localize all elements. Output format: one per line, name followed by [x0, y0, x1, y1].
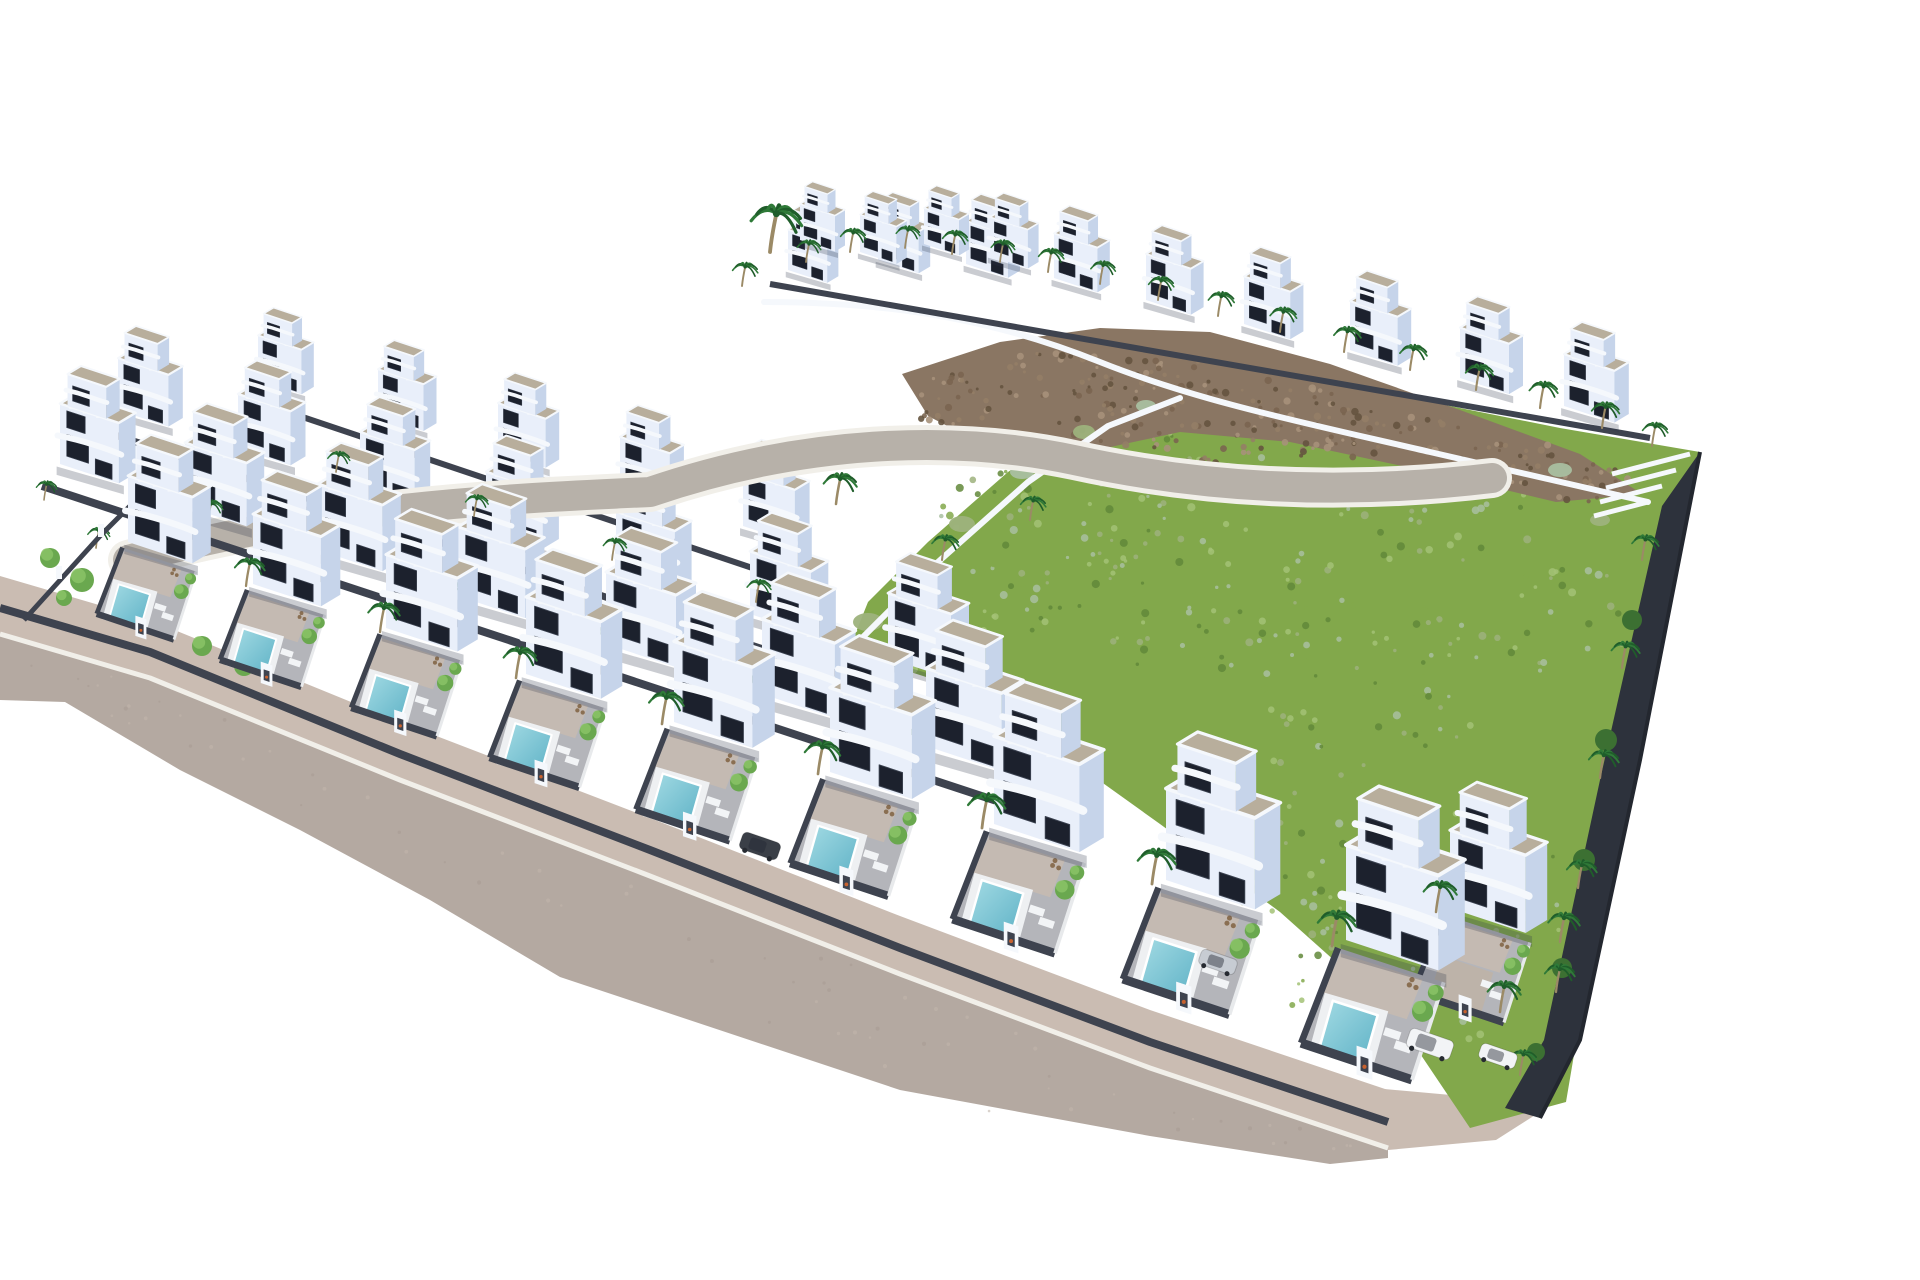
grass-tuft — [1447, 695, 1450, 698]
grass-tuft — [1519, 593, 1524, 598]
rock-speckle — [1334, 442, 1337, 445]
grass-tuft — [1177, 536, 1184, 543]
tree-highlight — [41, 548, 53, 560]
grass-tuft — [1187, 606, 1191, 610]
road-texture-dot — [189, 744, 192, 747]
rock-speckle — [1122, 441, 1129, 448]
grass-tuft — [1474, 655, 1478, 659]
rock-speckle — [1235, 433, 1240, 438]
rock-speckle — [945, 404, 952, 411]
grass-tuft — [977, 568, 985, 576]
rock-speckle — [1110, 412, 1114, 416]
tree — [56, 590, 72, 606]
road-texture-dot — [883, 1064, 887, 1068]
palm-frond — [1529, 385, 1543, 391]
grass-tuft — [1467, 722, 1474, 729]
grass-tuft — [1409, 517, 1414, 522]
grass-tuft — [1484, 501, 1490, 507]
tree — [743, 760, 756, 773]
road-texture-dot — [1033, 1046, 1037, 1050]
palm-crown — [743, 265, 747, 269]
grass-tuft — [1307, 871, 1315, 879]
grass-tuft — [1306, 654, 1311, 659]
villa-side-face — [912, 701, 935, 799]
tree-highlight — [175, 585, 184, 594]
grass-tuft — [1339, 512, 1343, 516]
rock-speckle — [1152, 358, 1159, 365]
palm-crown — [984, 797, 989, 802]
grass-tuft — [1304, 608, 1311, 615]
bed-tree — [1622, 610, 1642, 630]
road-texture-dot — [209, 745, 213, 749]
rock-speckle — [1202, 455, 1207, 460]
palm-trunk — [818, 747, 822, 774]
rock-speckle — [1282, 439, 1289, 446]
shrub — [1548, 463, 1572, 477]
grass-tuft — [1412, 692, 1416, 696]
rock-speckle — [1526, 463, 1529, 466]
grass-tuft — [1615, 610, 1622, 617]
grass-tuft — [1319, 745, 1323, 749]
patio-furniture — [581, 710, 585, 714]
rock-speckle — [1288, 388, 1292, 392]
rock-speckle — [1251, 427, 1257, 433]
grass-tuft — [970, 569, 975, 574]
palm-crown — [1219, 295, 1223, 299]
rock-speckle — [1180, 423, 1184, 427]
grass-tuft — [1147, 529, 1151, 533]
grass-tuft — [1092, 580, 1100, 588]
flower-pot — [1009, 939, 1013, 943]
grass-tuft — [1549, 576, 1553, 580]
grass-tuft — [1046, 581, 1049, 584]
grass-tuft — [1258, 608, 1264, 614]
grass-tuft — [1259, 617, 1266, 624]
grass-tuft — [1393, 649, 1396, 652]
rock-speckle — [1088, 385, 1091, 388]
grass-tuft — [1007, 513, 1014, 520]
rock-speckle — [1138, 422, 1143, 427]
flower-pot — [265, 676, 268, 679]
grass-tuft — [1314, 674, 1317, 677]
rock-speckle — [1399, 431, 1402, 434]
rock-speckle — [1222, 389, 1230, 397]
rock-speckle — [1329, 392, 1333, 396]
grass-tuft — [1287, 583, 1295, 591]
grass-tuft — [1223, 521, 1229, 527]
rock-speckle — [1350, 420, 1356, 426]
grass-tuft — [1518, 505, 1523, 510]
grass-tuft — [956, 484, 964, 492]
grass-tuft — [1235, 535, 1242, 542]
rock-speckle — [1245, 422, 1251, 428]
grass-tuft — [1257, 638, 1262, 643]
rock-speckle — [1152, 445, 1156, 449]
tree-highlight — [450, 663, 458, 671]
rock-speckle — [1599, 470, 1604, 475]
palm-crown — [1334, 915, 1339, 920]
palm-frond — [733, 265, 746, 270]
grass-tuft — [1090, 532, 1093, 535]
grass-tuft — [1110, 570, 1115, 575]
grass-tuft — [1343, 812, 1350, 819]
grass-tuft — [1219, 655, 1224, 660]
rock-speckle — [1370, 449, 1377, 456]
grass-tuft — [1283, 566, 1290, 573]
rock-speckle — [1142, 358, 1148, 364]
rock-speckle — [1162, 373, 1166, 377]
grass-tuft — [1027, 506, 1031, 510]
grass-tuft — [1380, 552, 1387, 559]
grass-tuft — [1336, 637, 1341, 642]
rock-speckle — [1241, 389, 1244, 392]
palm-crown — [1346, 329, 1350, 333]
rock-speckle — [1314, 413, 1321, 420]
rock-speckle — [1535, 463, 1541, 469]
tree-highlight — [1517, 945, 1525, 953]
grass-tuft — [1155, 517, 1159, 521]
rock-speckle — [1017, 353, 1024, 360]
villa-side-face — [321, 525, 340, 606]
patio-furniture — [302, 617, 306, 621]
grass-tuft — [1295, 558, 1300, 563]
grass-tuft — [1312, 749, 1317, 754]
rock-speckle — [938, 419, 944, 425]
viewport — [0, 0, 1920, 1280]
grass-tuft — [1538, 669, 1542, 673]
villa-side-face — [1438, 860, 1464, 971]
rock-speckle — [1099, 439, 1103, 443]
palm-trunk — [380, 608, 384, 632]
palm-crown — [1542, 384, 1546, 388]
tree-highlight — [185, 573, 192, 580]
grass-tuft — [1384, 636, 1389, 641]
road-texture-dot — [1298, 1127, 1302, 1131]
palm-trunk — [1218, 296, 1221, 316]
patio-furniture — [175, 573, 179, 577]
grass-tuft — [1287, 804, 1292, 809]
grass-tuft — [1180, 643, 1185, 648]
rock-speckle — [1354, 413, 1362, 421]
grass-tuft — [1298, 761, 1302, 765]
rock-speckle — [1503, 443, 1508, 448]
road-texture-dot — [77, 678, 79, 680]
grass-tuft — [1002, 542, 1009, 549]
grass-tuft — [1141, 609, 1149, 617]
grass-tuft — [1299, 997, 1305, 1003]
grass-tuft — [1268, 706, 1275, 713]
palm-crown — [45, 483, 48, 486]
rock-speckle — [1250, 399, 1255, 404]
tree-highlight — [1245, 923, 1254, 932]
palm-crown — [518, 650, 523, 655]
grass-tuft — [1285, 629, 1291, 635]
road-texture-dot — [560, 904, 563, 907]
palm-crown — [1282, 310, 1286, 314]
rock-speckle — [1014, 393, 1019, 398]
grass-tuft — [1261, 685, 1268, 692]
palm-crown — [1604, 405, 1608, 409]
grass-tuft — [1243, 527, 1248, 532]
rock-speckle — [1375, 421, 1379, 425]
grass-tuft — [1042, 618, 1049, 625]
grass-tuft — [1113, 565, 1118, 570]
grass-tuft — [1356, 728, 1361, 733]
road-texture-dot — [869, 1036, 872, 1039]
road-texture-dot — [241, 757, 244, 760]
grass-tuft — [1138, 495, 1145, 502]
rock-speckle — [968, 389, 973, 394]
grass-tuft — [1030, 595, 1038, 603]
rock-speckle — [1563, 496, 1570, 503]
rock-speckle — [1014, 362, 1018, 366]
road-texture-dot — [444, 861, 446, 863]
villa-side-face — [752, 654, 774, 748]
rock-speckle — [1280, 424, 1283, 427]
grass-tuft — [1461, 558, 1464, 561]
villa — [1143, 225, 1203, 323]
rock-speckle — [1023, 370, 1026, 373]
rock-speckle — [1314, 401, 1318, 405]
grass-tuft — [1346, 507, 1350, 511]
road-texture-dot — [1014, 1032, 1017, 1035]
tree — [192, 636, 212, 656]
rock-speckle — [1582, 479, 1588, 485]
palm-trunk — [742, 267, 745, 286]
tree-highlight — [193, 636, 205, 648]
grass-tuft — [1339, 598, 1344, 603]
palm-crown — [1031, 499, 1035, 503]
grass-tuft — [1157, 503, 1162, 508]
grass-tuft — [1270, 757, 1277, 764]
grass-tuft — [1170, 606, 1176, 612]
palm-frond — [968, 797, 987, 805]
grass-tuft — [1377, 529, 1384, 536]
rock-speckle — [1606, 467, 1611, 472]
palm-crown — [1644, 538, 1648, 542]
grass-tuft — [1568, 588, 1576, 596]
rock-speckle — [983, 398, 989, 404]
rock-speckle — [1265, 377, 1272, 384]
rock-speckle — [1132, 423, 1139, 430]
rock-speckle — [1020, 363, 1026, 369]
rock-speckle — [1110, 377, 1114, 381]
grass-tuft — [1438, 727, 1442, 731]
grass-tuft — [1264, 646, 1270, 652]
grass-tuft — [1140, 645, 1148, 653]
rock-speckle — [1544, 441, 1551, 448]
grass-tuft — [1120, 539, 1128, 547]
grass-tuft — [1199, 434, 1204, 439]
road-texture-dot — [1346, 1144, 1349, 1147]
rock-speckle — [1408, 425, 1414, 431]
rock-speckle — [1207, 380, 1211, 384]
palm-trunk — [662, 698, 666, 724]
road-texture-dot — [988, 1110, 991, 1113]
grass-tuft — [991, 563, 995, 567]
road-texture-dot — [501, 851, 504, 854]
road-texture-dot — [546, 898, 550, 902]
palm-crown — [773, 210, 780, 217]
rock-speckle — [1007, 364, 1013, 370]
palm-frond — [1643, 425, 1656, 430]
palm-crown — [1602, 753, 1606, 757]
palm-crown — [1438, 884, 1443, 889]
grass-tuft — [1417, 548, 1423, 554]
palm-frond — [368, 606, 384, 613]
grass-tuft — [1362, 763, 1366, 767]
grass-tuft — [1585, 567, 1592, 574]
tree-highlight — [1428, 985, 1438, 995]
rock-speckle — [1587, 499, 1591, 503]
grass-tuft — [1558, 582, 1566, 590]
rock-speckle — [1207, 390, 1213, 396]
villa-side-face — [601, 609, 622, 699]
rock-speckle — [1310, 387, 1315, 392]
road-texture-dot — [477, 880, 481, 884]
grass-tuft — [1465, 1035, 1472, 1042]
grass-tuft — [1058, 606, 1062, 610]
grass-tuft — [1081, 534, 1089, 542]
grass-tuft — [1540, 659, 1547, 666]
grass-tuft — [992, 490, 996, 494]
road-texture-dot — [179, 714, 182, 717]
patio-furniture — [1413, 985, 1418, 990]
grass-tuft — [1187, 503, 1195, 511]
grass-tuft — [1289, 1002, 1295, 1008]
grass-tuft — [1033, 585, 1041, 593]
rock-speckle — [1133, 396, 1138, 401]
grass-tuft — [1018, 508, 1022, 512]
grass-tuft — [1204, 629, 1209, 634]
grass-tuft — [1133, 554, 1138, 559]
grass-tuft — [1390, 678, 1396, 684]
palm-frond — [751, 210, 776, 220]
tree — [40, 548, 60, 568]
tree-highlight — [57, 590, 67, 600]
rock-speckle — [1202, 383, 1207, 388]
grass-tuft — [1301, 979, 1305, 983]
grass-tuft — [1325, 926, 1329, 930]
road-texture-dot — [625, 892, 629, 896]
grass-tuft — [1494, 635, 1500, 641]
grass-tuft — [969, 594, 973, 598]
road-texture-dot — [1113, 1093, 1115, 1095]
grass-tuft — [991, 614, 996, 619]
tree-highlight — [438, 675, 448, 685]
tree-highlight — [1413, 1001, 1426, 1014]
grass-tuft — [1325, 617, 1330, 622]
grass-tuft — [1297, 982, 1300, 985]
grass-tuft — [1308, 930, 1316, 938]
grass-tuft — [1335, 819, 1343, 827]
grass-tuft — [1034, 520, 1042, 528]
road-texture-dot — [30, 665, 32, 667]
grass-tuft — [1422, 507, 1427, 512]
rock-speckle — [1164, 445, 1171, 452]
villa — [798, 182, 845, 258]
tree — [1055, 880, 1075, 900]
rock-speckle — [1102, 403, 1106, 407]
tree-highlight — [314, 617, 321, 624]
rock-speckle — [1120, 432, 1124, 436]
grass-tuft — [1008, 583, 1014, 589]
road-texture-dot — [1332, 1147, 1335, 1150]
rock-speckle — [1382, 424, 1385, 427]
patio-furniture — [1056, 865, 1061, 870]
rock-speckle — [951, 422, 954, 425]
grass-tuft — [1081, 521, 1086, 526]
grass-tuft — [1094, 573, 1101, 580]
grass-tuft — [1375, 723, 1382, 730]
grass-tuft — [1284, 841, 1288, 845]
road-texture-dot — [764, 957, 766, 959]
grass-tuft — [1429, 653, 1434, 658]
rock-speckle — [1104, 374, 1109, 379]
road-texture-dot — [404, 850, 408, 854]
grass-tuft — [1141, 581, 1144, 584]
tree — [302, 629, 318, 645]
rock-speckle — [1341, 439, 1344, 442]
grass-tuft — [1277, 759, 1284, 766]
rock-speckle — [1164, 411, 1168, 415]
rock-speckle — [1312, 395, 1316, 399]
rock-speckle — [1329, 434, 1334, 439]
rock-speckle — [1241, 444, 1247, 450]
grass-tuft — [1298, 829, 1305, 836]
road-texture-dot — [300, 804, 302, 806]
palm-crown — [1580, 863, 1584, 867]
rock-speckle — [1123, 386, 1127, 390]
grass-tuft — [1509, 587, 1513, 591]
tree — [580, 723, 597, 740]
rock-speckle — [1617, 488, 1620, 491]
palm-frond — [649, 695, 666, 702]
grass-tuft — [1554, 902, 1559, 907]
grass-tuft — [1287, 597, 1293, 603]
flower-pot — [539, 775, 542, 778]
road-texture-dot — [629, 884, 633, 888]
grass-tuft — [1456, 637, 1460, 641]
grass-tuft — [1066, 556, 1069, 559]
rock-speckle — [1474, 447, 1478, 451]
rock-speckle — [1186, 381, 1193, 388]
grass-tuft — [1197, 624, 1202, 629]
grass-tuft — [1585, 620, 1592, 627]
rock-speckle — [937, 397, 940, 400]
road-texture-dot — [398, 831, 401, 834]
rock-speckle — [1035, 352, 1038, 355]
villa — [922, 186, 969, 262]
patio-furniture — [884, 809, 889, 814]
grass-tuft — [1120, 563, 1125, 568]
palm-crown — [1001, 242, 1004, 245]
road-texture-dot — [128, 722, 131, 725]
rock-speckle — [1275, 427, 1280, 432]
rock-speckle — [1498, 449, 1501, 452]
rock-speckle — [1318, 388, 1323, 393]
grass-tuft — [1186, 609, 1192, 615]
palm-crown — [1653, 425, 1657, 429]
rock-speckle — [1487, 445, 1491, 449]
grass-tuft — [1223, 617, 1230, 624]
rock-speckle — [1121, 408, 1127, 414]
rock-speckle — [1366, 425, 1373, 432]
grass-tuft — [1238, 609, 1243, 614]
grass-tuft — [1087, 562, 1092, 567]
grass-tuft — [1477, 504, 1485, 512]
road-texture-dot — [127, 704, 131, 708]
